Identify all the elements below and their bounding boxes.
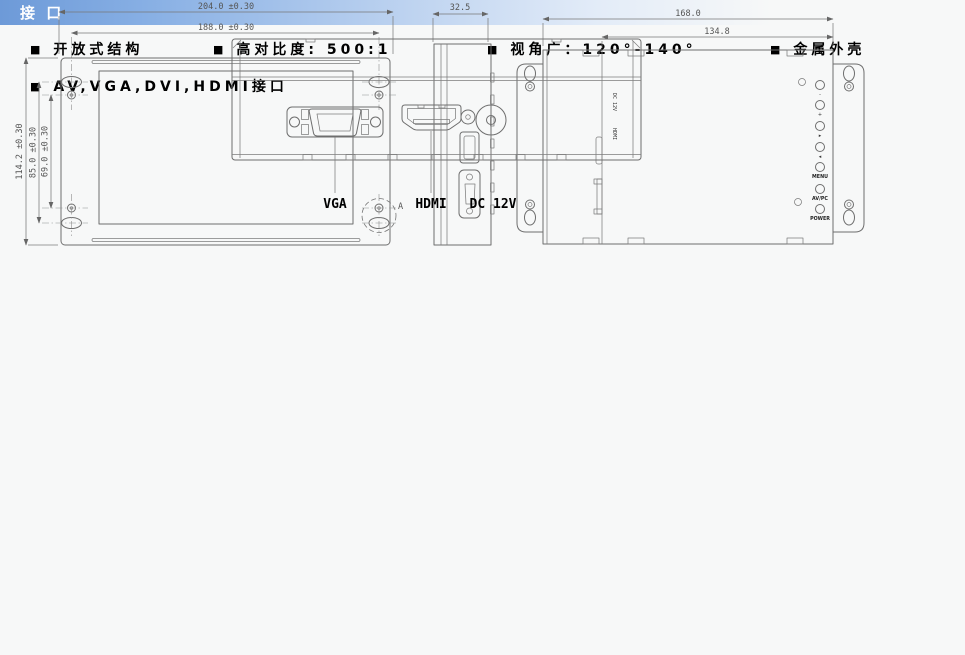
interface-drawing: VGA HDMI DC 12V — [0, 0, 965, 237]
vga-connector — [287, 107, 383, 137]
dc-jack — [476, 105, 506, 135]
vga-port-label: VGA — [323, 197, 347, 212]
bottom-view: VGA HDMI DC 12V — [232, 39, 641, 212]
hdmi-port-label: HDMI — [415, 197, 446, 212]
hdmi-connector — [402, 105, 461, 130]
dc-port-label: DC 12V — [470, 197, 517, 212]
